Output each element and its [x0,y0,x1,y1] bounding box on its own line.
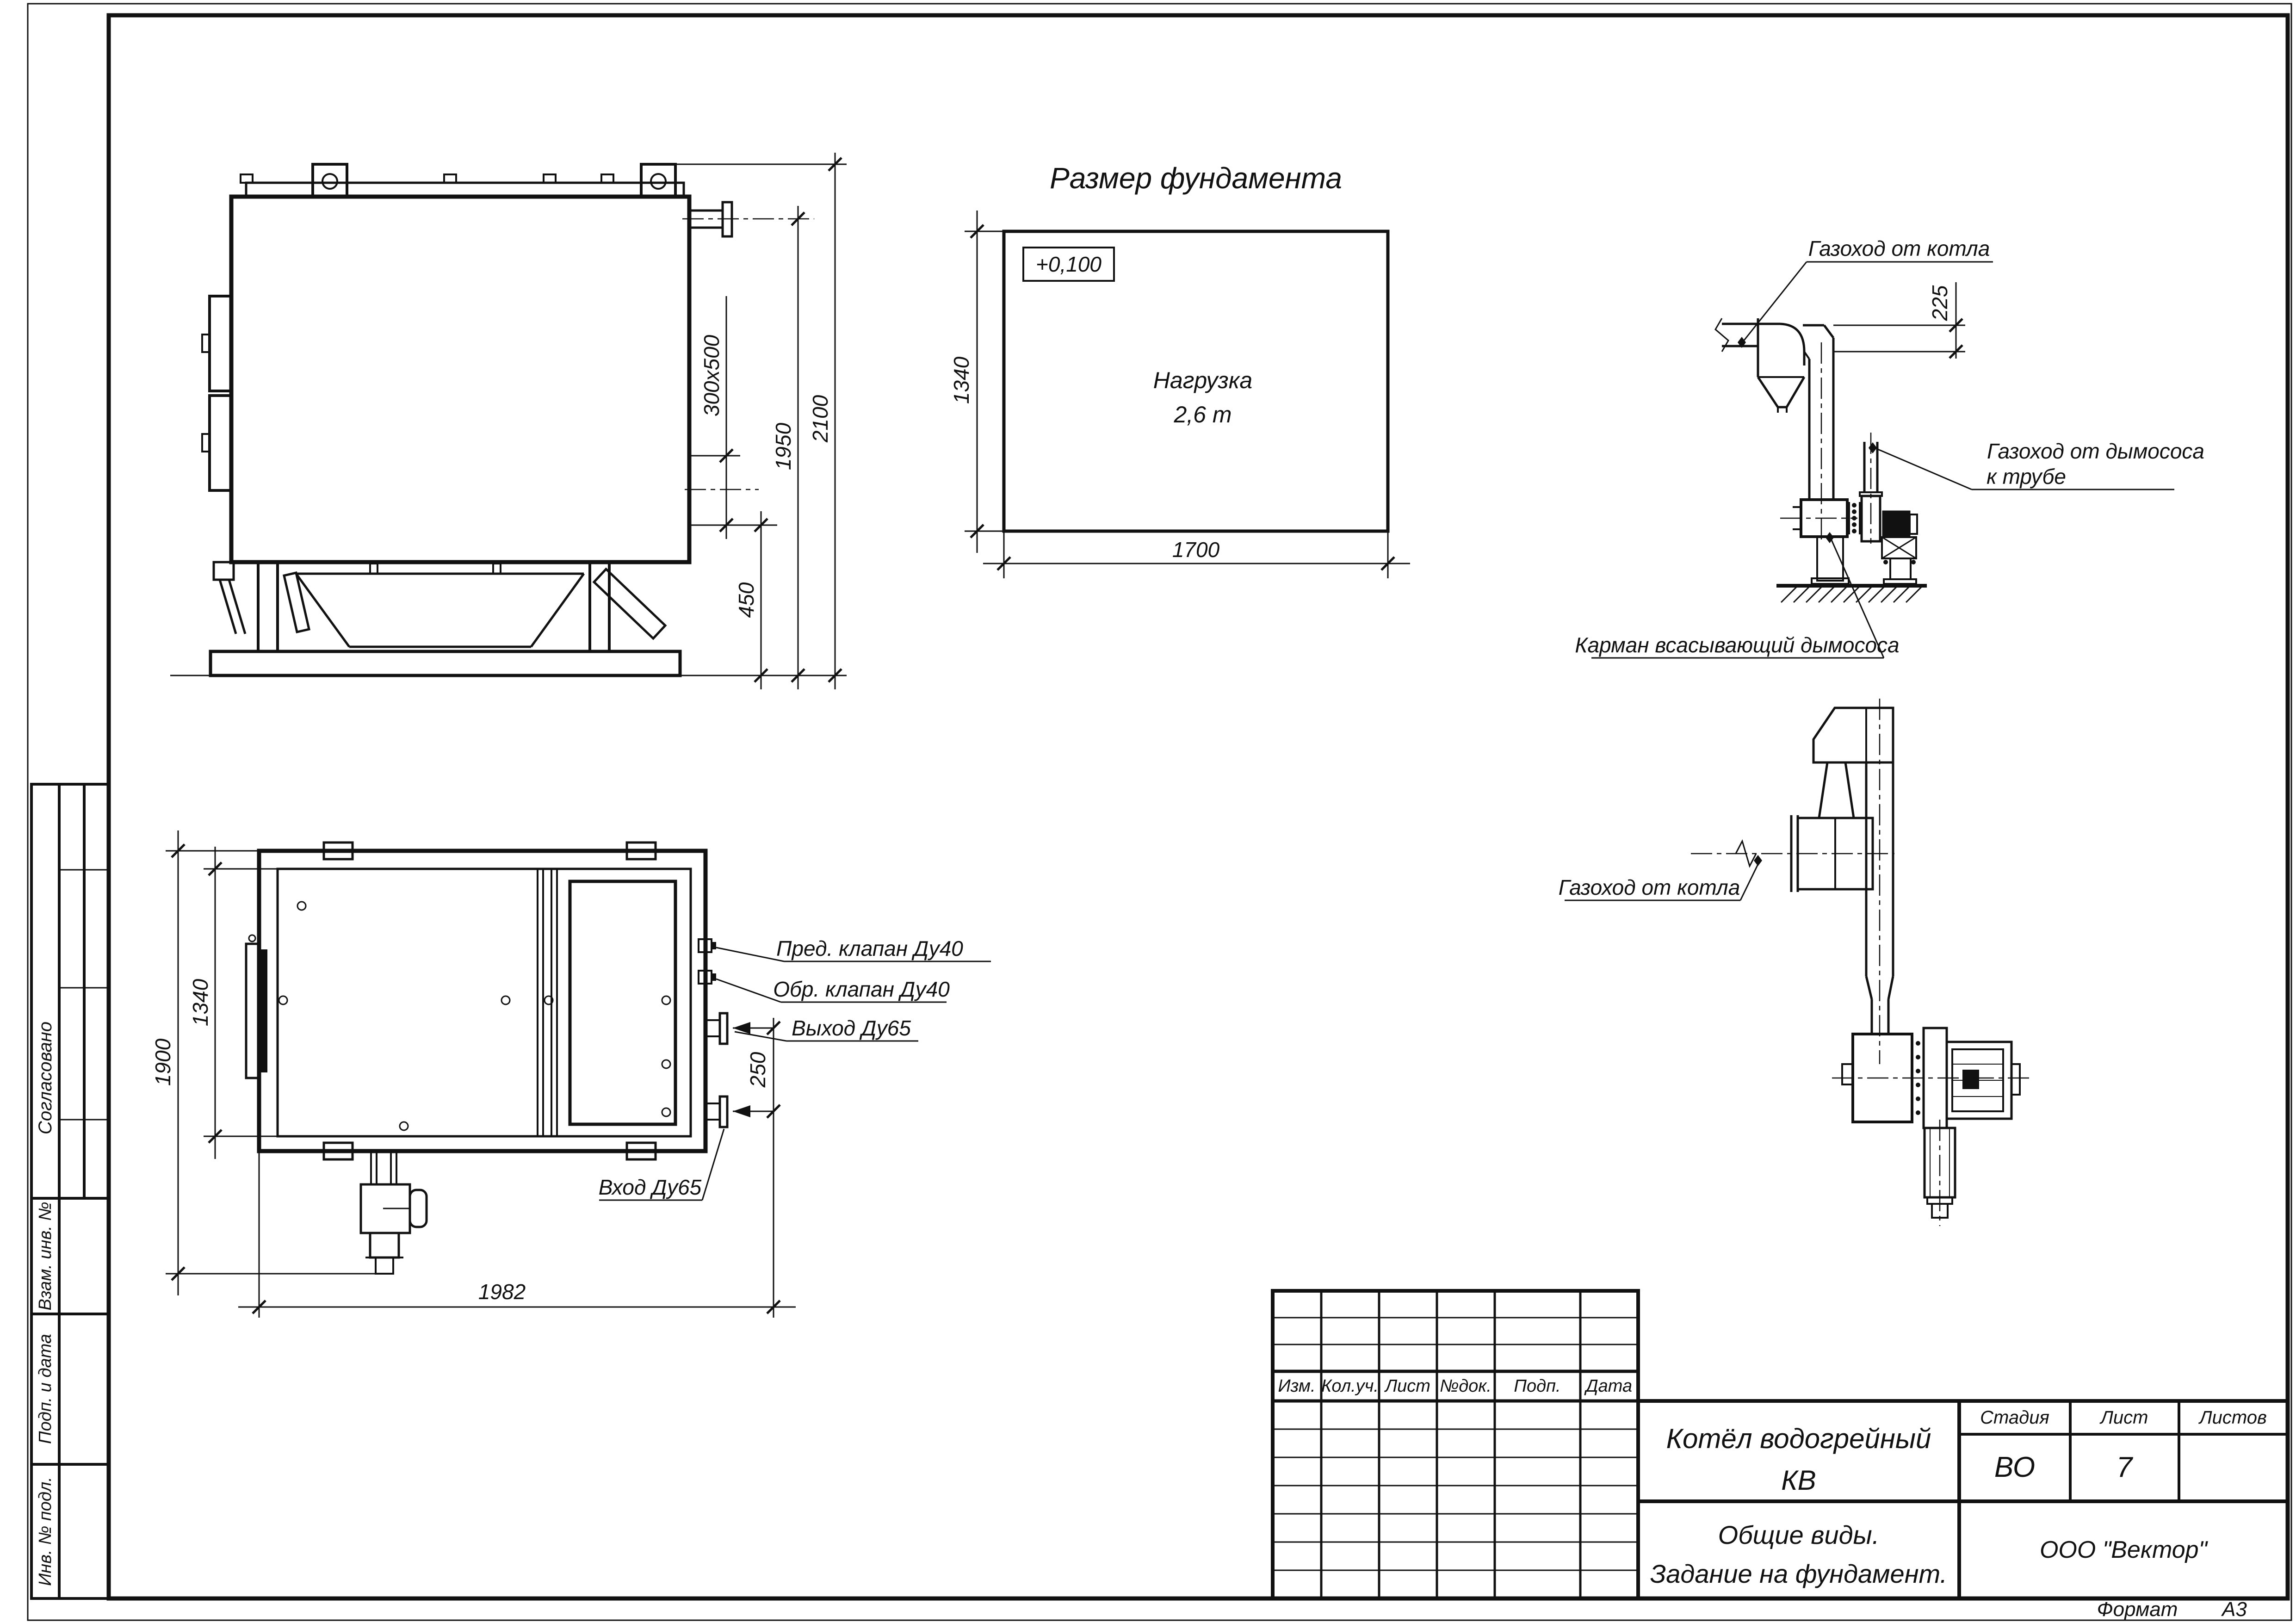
doc-subtitle-line1: Общие виды. [1718,1522,1880,1548]
drawing-sheet: Согласовано Взам. инв. № Подп. и дата Ин… [0,0,2296,1623]
rev-header-list: Лист [1385,1377,1430,1395]
sheet-value: 7 [2117,1453,2132,1482]
plan-label-inlet: Вход Ду65 [599,1177,702,1198]
rev-header-koluch: Кол.уч. [1321,1377,1379,1395]
margin-label-podp-data: Подп. и дата [37,1334,54,1444]
rev-header-data: Дата [1586,1377,1632,1395]
format-label: Формат [2097,1599,2178,1620]
flue-plan-label-from-boiler: Газоход от котла [1559,877,1740,898]
format-value: А3 [2222,1599,2247,1620]
company-name: ООО "Вектор" [2040,1538,2207,1562]
foundation-plan [965,211,1410,578]
margin-label-soglasovano: Согласовано [36,1022,55,1134]
foundation-dim-1340: 1340 [951,357,972,404]
doc-title-line1: Котёл водогрейный [1666,1425,1931,1453]
doc-subtitle-line2: Задание на фундамент. [1650,1561,1947,1587]
boiler-side-view [170,164,814,675]
plan-dim-250: 250 [747,1052,768,1088]
left-margin-blocks [31,784,109,1598]
flue-elev-label-to-stack-2: к трубе [1987,466,2066,487]
plan-dim-1340: 1340 [190,979,211,1026]
doc-title-line2: КВ [1781,1467,1816,1494]
side-dim-2100: 2100 [810,395,831,442]
plan-dim-1982: 1982 [478,1281,526,1302]
flue-elev-label-to-stack-1: Газоход от дымососа [1987,440,2204,462]
foundation-elevation-mark: +0,100 [1036,254,1102,275]
flue-elev-label-from-boiler: Газоход от котла [1808,238,1990,259]
sheet-label: Лист [2101,1408,2148,1427]
stage-value: ВО [1994,1453,2035,1482]
side-dim-duct: 300х500 [701,335,722,417]
flue-plan-view [1565,699,2031,1226]
foundation-load-line1: Нагрузка [1153,369,1252,392]
boiler-plan-view [166,830,991,1318]
plan-label-check-valve: Обр. клапан Ду40 [773,979,950,1000]
plan-label-outlet: Выход Ду65 [792,1017,911,1039]
foundation-title: Размер фундамента [1050,163,1342,193]
plan-dim-1900: 1900 [152,1039,173,1086]
side-dim-450: 450 [736,582,757,618]
plan-label-safety-valve: Пред. клапан Ду40 [776,938,963,959]
rev-header-ndok: №док. [1440,1377,1491,1395]
flue-elev-dim-225: 225 [1929,285,1950,321]
foundation-load-line2: 2,6 т [1174,403,1232,426]
margin-label-vzam-inv: Взам. инв. № [37,1202,54,1310]
rev-header-izm: Изм. [1278,1377,1315,1395]
stage-label: Стадия [1980,1408,2049,1427]
margin-label-inv-podl: Инв. № подл. [37,1477,54,1586]
rev-header-podp: Подп. [1514,1377,1560,1395]
side-dim-1950: 1950 [773,423,794,470]
sheets-label: Листов [2199,1408,2267,1427]
foundation-dim-1700: 1700 [1172,539,1219,560]
flue-elev-label-pocket: Карман всасывающий дымососа [1575,634,1899,656]
